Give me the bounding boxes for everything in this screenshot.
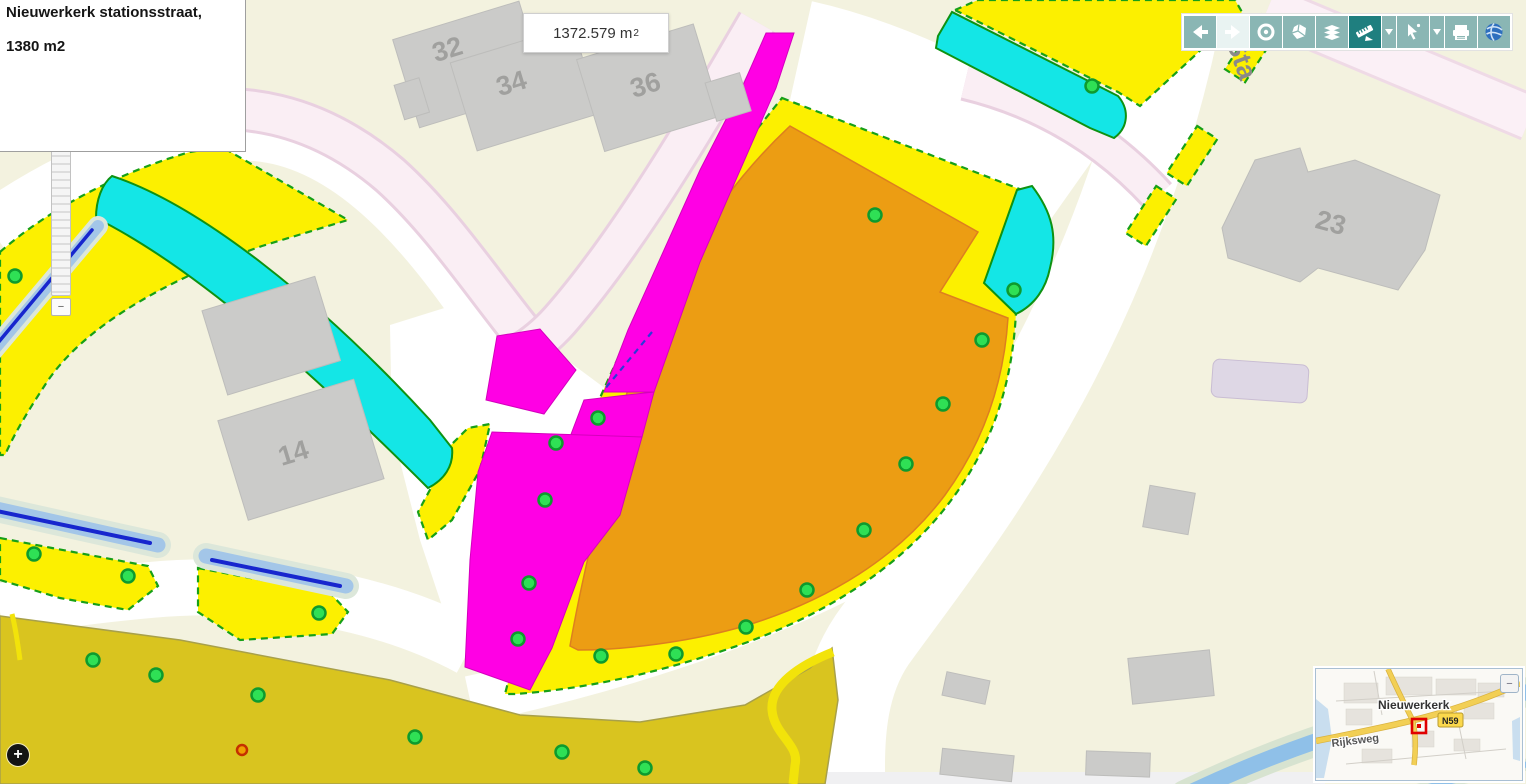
building-lavender [1211, 359, 1309, 404]
chevron-down-icon [1432, 28, 1442, 36]
map-toolbar [1181, 13, 1513, 51]
gis-application: 32 34 36 14 23 Sta Nieuwerkerk stationss… [0, 0, 1526, 784]
pointer-cursor-icon [1402, 21, 1424, 43]
layers-icon [1321, 21, 1343, 43]
zoom-full-extent-button[interactable] [1250, 16, 1282, 48]
back-arrow-icon [1189, 21, 1211, 43]
overview-minimap[interactable]: N59 Nieuwerkerk Rijksweg − [1315, 668, 1523, 781]
print-button[interactable] [1445, 16, 1477, 48]
minimap-water-right [1512, 717, 1520, 761]
measure-ruler-icon [1354, 21, 1376, 43]
identify-cube-icon [1288, 21, 1310, 43]
printer-icon [1450, 21, 1472, 43]
feature-area: 1380 m2 [6, 38, 239, 55]
zoom-slider[interactable]: − [51, 148, 71, 316]
expand-plus-label: + [13, 746, 22, 764]
globe-button[interactable] [1478, 16, 1510, 48]
zoom-out-handle[interactable]: − [51, 298, 71, 316]
minimap-town-label: Nieuwerkerk [1378, 698, 1450, 712]
expand-button[interactable]: + [7, 744, 29, 766]
minimap-collapse-label: − [1506, 678, 1512, 690]
measure-button[interactable] [1349, 16, 1381, 48]
globe-icon [1483, 21, 1505, 43]
identify-button[interactable] [1283, 16, 1315, 48]
measurement-sup: 2 [633, 28, 639, 39]
select-button[interactable] [1397, 16, 1429, 48]
zoom-slider-track[interactable] [51, 148, 71, 296]
minimap-location-dot [1417, 724, 1421, 728]
forward-arrow-icon [1222, 21, 1244, 43]
zoom-out-label: − [58, 301, 64, 313]
minimap-n59-label: N59 [1442, 716, 1459, 726]
layers-button[interactable] [1316, 16, 1348, 48]
survey-point-marker [237, 745, 247, 755]
feature-title: Nieuwerkerk stationsstraat, [6, 4, 239, 21]
forward-button[interactable] [1217, 16, 1249, 48]
chevron-down-icon [1384, 28, 1394, 36]
measurement-label: 1372.579 m2 [523, 13, 669, 53]
select-dropdown-caret[interactable] [1430, 16, 1444, 48]
measure-dropdown-caret[interactable] [1382, 16, 1396, 48]
zoom-extent-icon [1255, 21, 1277, 43]
minimap-collapse-button[interactable]: − [1500, 674, 1519, 693]
minimap-canvas: N59 Nieuwerkerk Rijksweg [1316, 669, 1520, 778]
back-button[interactable] [1184, 16, 1216, 48]
feature-info-panel: Nieuwerkerk stationsstraat, 1380 m2 [0, 0, 246, 152]
measurement-value: 1372.579 m [553, 25, 632, 42]
